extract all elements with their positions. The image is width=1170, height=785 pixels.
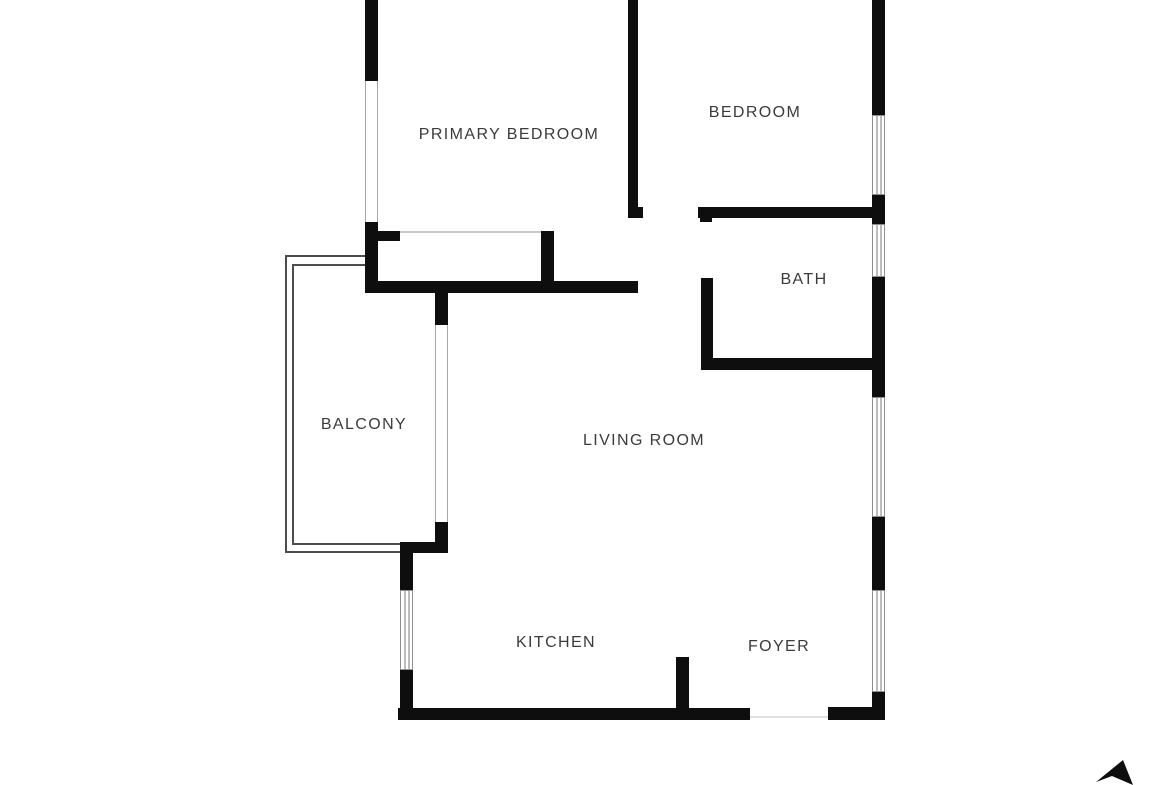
bedroom-window-pane [876, 116, 881, 194]
room-label-foyer: FOYER [748, 638, 810, 656]
closet-door-track [400, 231, 541, 233]
balcony-rail-inner-bottom [292, 543, 400, 545]
balcony-rail-inner-left [292, 264, 294, 545]
right-wall-3 [872, 277, 885, 397]
primary-bottom-wall [365, 281, 638, 293]
room-label-bath: BATH [780, 271, 827, 289]
primary-bedroom-glass-wall [365, 81, 378, 222]
balcony-stub-top [435, 293, 448, 325]
kitchen-window-pane [404, 591, 409, 669]
balcony-rail-outer-bottom [285, 551, 400, 553]
foyer-window-pane [876, 591, 881, 691]
bath-bottom-wall [701, 358, 872, 370]
bedroom-divider-wall [628, 0, 638, 218]
right-wall-4 [872, 517, 885, 590]
floor-plan-canvas: PRIMARY BEDROOMBEDROOMBATHBALCONYLIVING … [0, 0, 1170, 785]
balcony-rail-outer-top [285, 255, 365, 257]
bottom-right-corner [872, 697, 885, 720]
kitchen-foyer-stub [676, 657, 689, 720]
bath-left-wall-lower [701, 278, 713, 358]
north-arrow-icon [1085, 757, 1135, 785]
foyer-window [872, 590, 885, 692]
room-label-bedroom: BEDROOM [709, 104, 801, 122]
bottom-wall-left [398, 708, 750, 720]
right-wall-2 [872, 195, 885, 224]
right-wall-1 [872, 0, 885, 115]
room-label-primary-bedroom: PRIMARY BEDROOM [419, 126, 599, 144]
living-room-window [872, 397, 885, 517]
living-room-window-pane [876, 398, 881, 516]
bedroom-bottom-wall [698, 207, 872, 218]
balcony-slider-glass [435, 325, 448, 522]
bath-left-wall-upper [700, 207, 712, 222]
room-label-kitchen: KITCHEN [516, 634, 596, 652]
balcony-rail-outer-left [285, 255, 287, 553]
closet-stub-right [541, 231, 554, 291]
balcony-rail-inner-top [292, 264, 365, 266]
closet-stub-left [378, 231, 400, 241]
bedroom-door-nub [638, 207, 643, 218]
kitchen-left-upper [400, 553, 413, 590]
kitchen-top-wall [400, 542, 448, 553]
floor-plan-page: PRIMARY BEDROOMBEDROOMBATHBALCONYLIVING … [0, 0, 1170, 785]
bath-window-pane [876, 225, 881, 276]
left-wall-top [365, 0, 378, 81]
room-label-living-room: LIVING ROOM [583, 432, 705, 450]
kitchen-window [400, 590, 413, 670]
bath-window [872, 224, 885, 277]
bedroom-window [872, 115, 885, 195]
entry-threshold [750, 716, 828, 718]
room-label-balcony: BALCONY [321, 416, 407, 434]
